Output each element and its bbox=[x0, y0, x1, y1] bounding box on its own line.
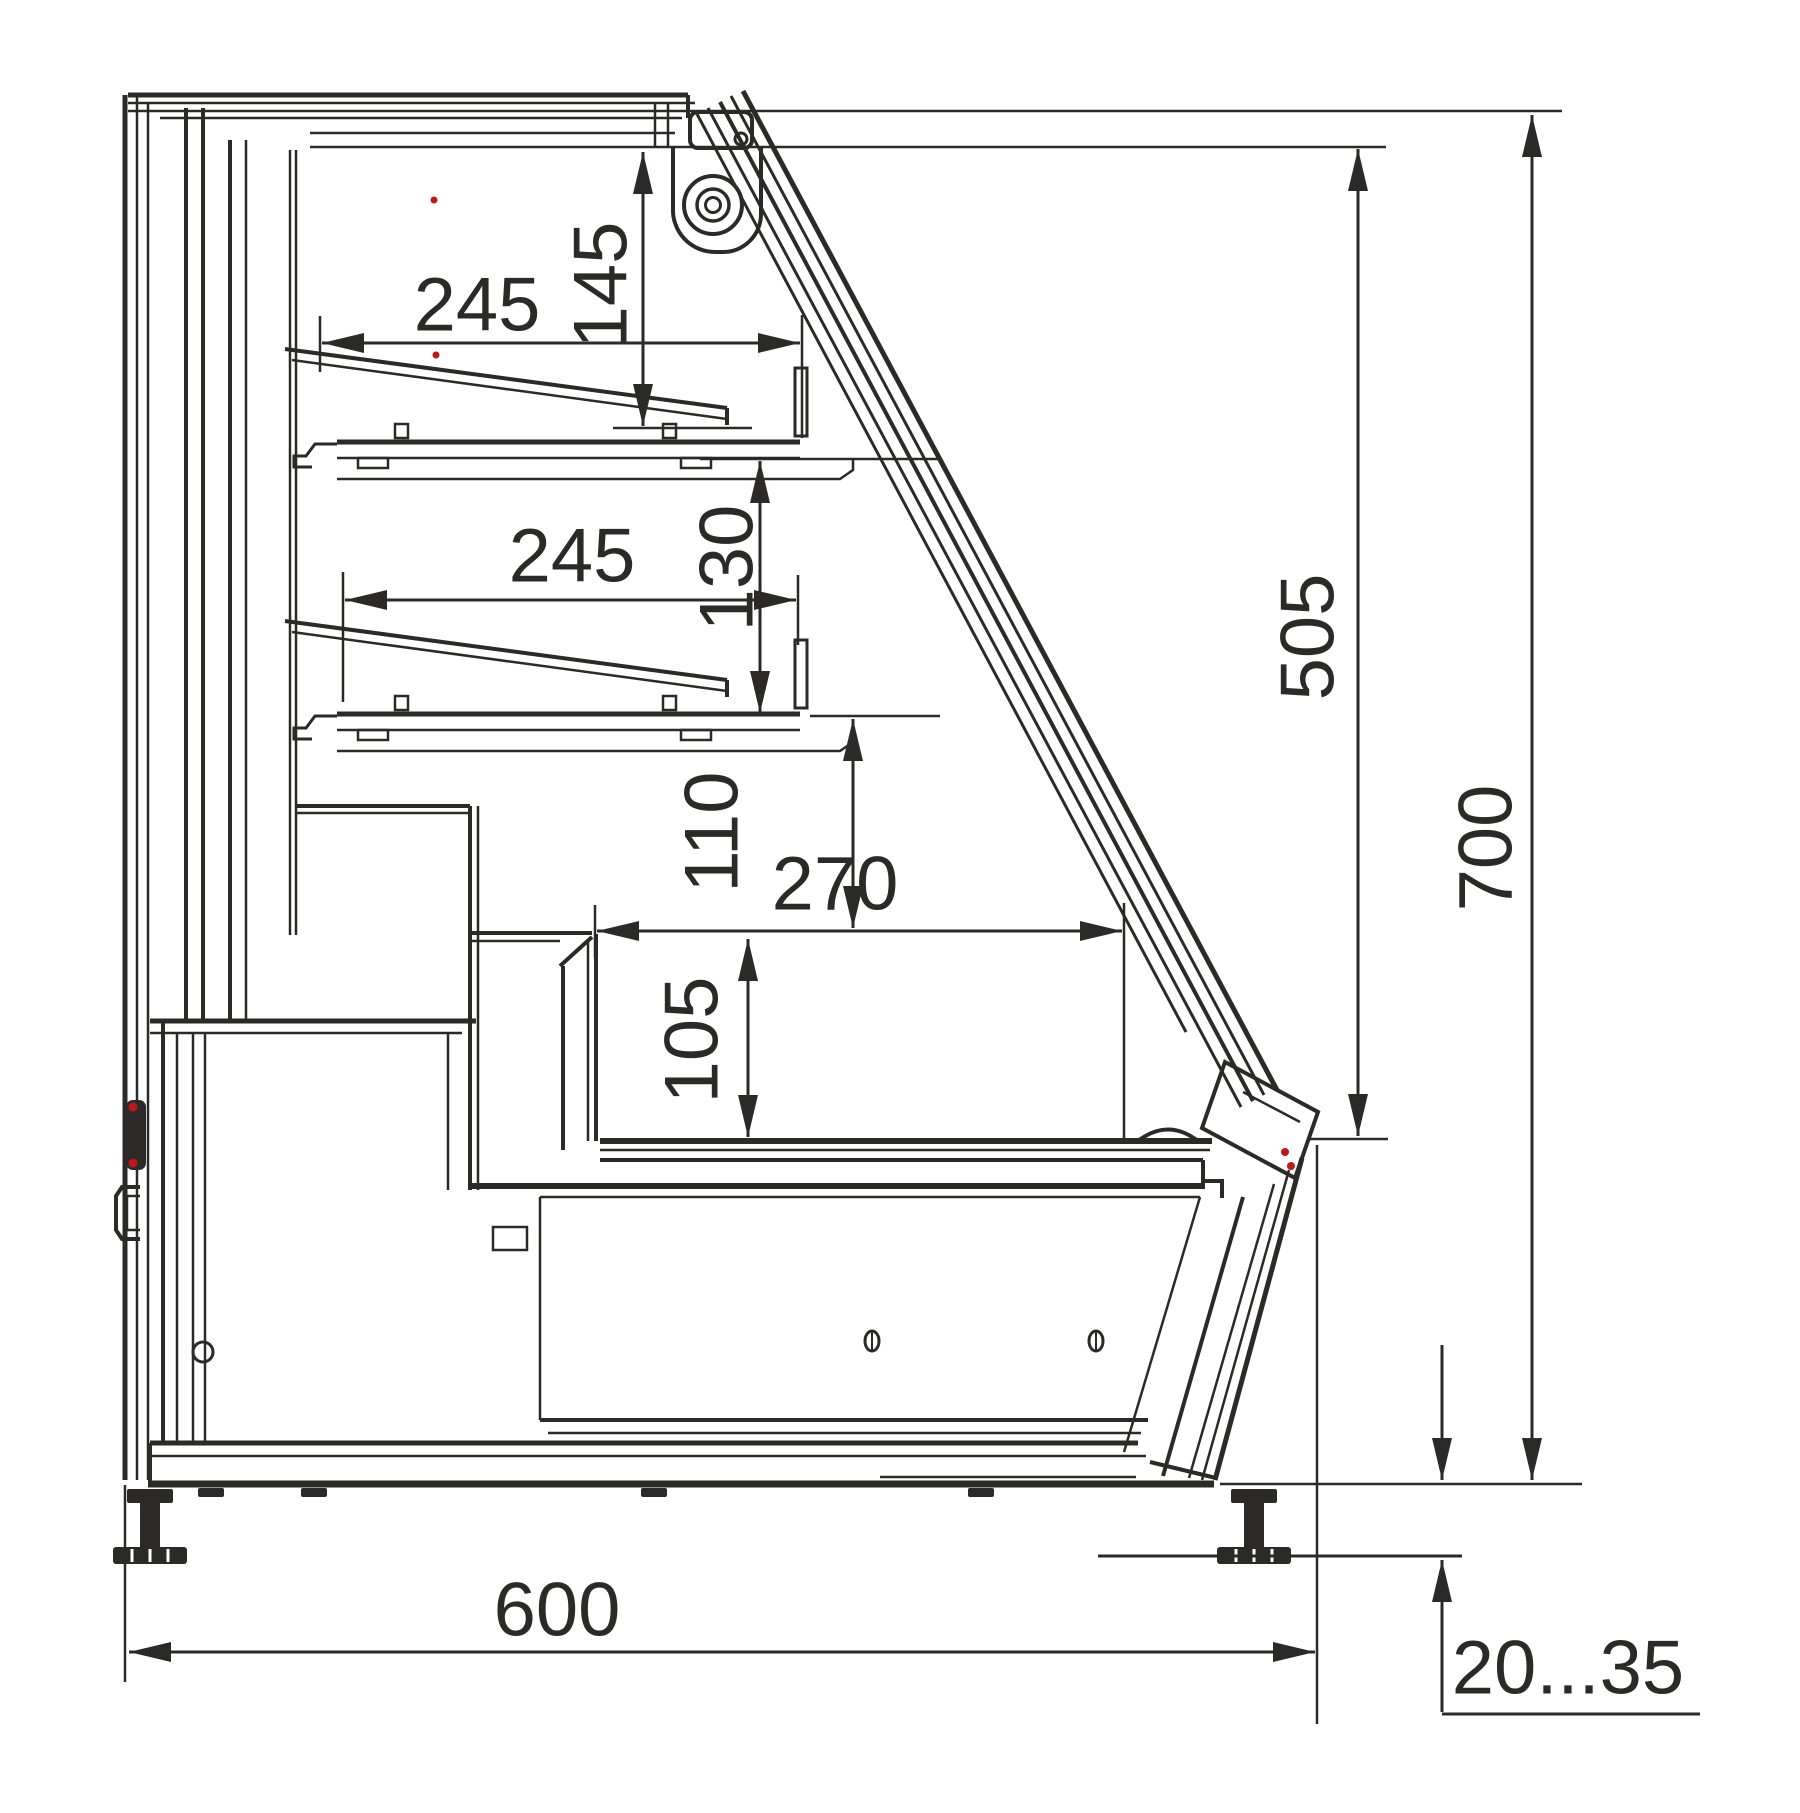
front-bumper bbox=[1150, 1158, 1302, 1480]
dim-label-245-top: 245 bbox=[414, 263, 541, 348]
dim-label-20-35: 20...35 bbox=[1452, 1626, 1684, 1711]
dim-label-110: 110 bbox=[670, 771, 755, 892]
power-switch bbox=[116, 1100, 146, 1239]
dim-glass-height: 505 bbox=[1266, 149, 1389, 1139]
dim-well-depth: 105 bbox=[650, 939, 749, 1137]
glass-front bbox=[697, 91, 1318, 1178]
canopy bbox=[128, 95, 1562, 252]
dim-body-height: 700 bbox=[1220, 115, 1582, 1484]
machine-compartment bbox=[150, 1021, 476, 1443]
dim-label-270: 270 bbox=[772, 842, 899, 927]
cold-well bbox=[296, 806, 1222, 1198]
dim-label-245-mid: 245 bbox=[509, 514, 636, 599]
base-frame bbox=[148, 1443, 1214, 1497]
dim-label-600: 600 bbox=[494, 1568, 621, 1653]
dim-label-105: 105 bbox=[650, 977, 735, 1104]
dim-label-700: 700 bbox=[1444, 785, 1529, 912]
shelf-2 bbox=[285, 621, 853, 751]
marker-dot bbox=[433, 352, 440, 359]
dim-feet-range: 20...35 bbox=[1442, 1345, 1700, 1714]
dim-label-130: 130 bbox=[685, 505, 770, 632]
panel-screw bbox=[1089, 1331, 1103, 1351]
door-screw bbox=[193, 1342, 213, 1362]
panel-screw bbox=[865, 1331, 879, 1351]
leveling-foot-right bbox=[1217, 1489, 1291, 1564]
dim-label-505: 505 bbox=[1266, 574, 1351, 701]
marker-dot bbox=[431, 197, 438, 204]
technical-drawing-svg: 145 245 245 130 110 270 105 505 bbox=[0, 0, 1800, 1813]
latch bbox=[493, 1227, 527, 1250]
dim-base-depth: 600 bbox=[125, 1145, 1317, 1724]
technical-drawing-page: 145 245 245 130 110 270 105 505 bbox=[0, 0, 1800, 1813]
kick-panel bbox=[470, 1186, 1205, 1452]
dim-label-145: 145 bbox=[559, 222, 644, 349]
lamp-roller bbox=[673, 148, 761, 252]
